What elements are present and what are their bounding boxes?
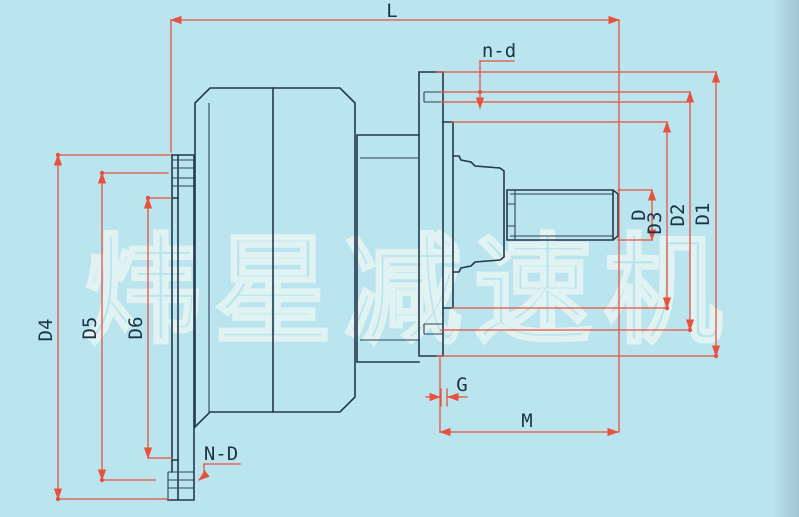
dim-label-d2: D2 bbox=[667, 204, 689, 227]
dim-label-n-d: n-d bbox=[482, 40, 516, 62]
dim-label-d3: D3 bbox=[644, 212, 666, 235]
ext-dot bbox=[478, 90, 482, 94]
watermark-text: 炜星减速机 bbox=[84, 222, 734, 360]
dimension-N-D: N-D bbox=[199, 443, 240, 480]
dim-label-d6: D6 bbox=[125, 317, 147, 340]
dim-label-n-d-caps: N-D bbox=[204, 443, 238, 465]
drawing-canvas: 炜星减速机 L n-d bbox=[0, 0, 799, 517]
dimension-G: G bbox=[426, 374, 468, 406]
dim-label-d4: D4 bbox=[35, 319, 57, 342]
dimension-D5: D5 bbox=[79, 173, 102, 480]
dim-label-l: L bbox=[386, 0, 397, 22]
dimension-n-d: n-d bbox=[480, 40, 516, 108]
dim-leader-N-D bbox=[199, 464, 204, 480]
dim-label-d1: D1 bbox=[692, 203, 714, 226]
input-flange-bolt-section-top bbox=[172, 160, 194, 186]
output-flange-bolt-section-top bbox=[424, 92, 443, 102]
dimension-L: L bbox=[171, 0, 619, 432]
dim-label-m: M bbox=[521, 410, 532, 432]
input-flange-bolt-section-bottom bbox=[168, 472, 194, 500]
dim-label-g: G bbox=[456, 374, 467, 396]
dimension-D4: D4 bbox=[35, 155, 58, 499]
reducer-outline-drawing: 炜星减速机 L n-d bbox=[0, 0, 799, 517]
dim-label-d5: D5 bbox=[79, 317, 101, 340]
